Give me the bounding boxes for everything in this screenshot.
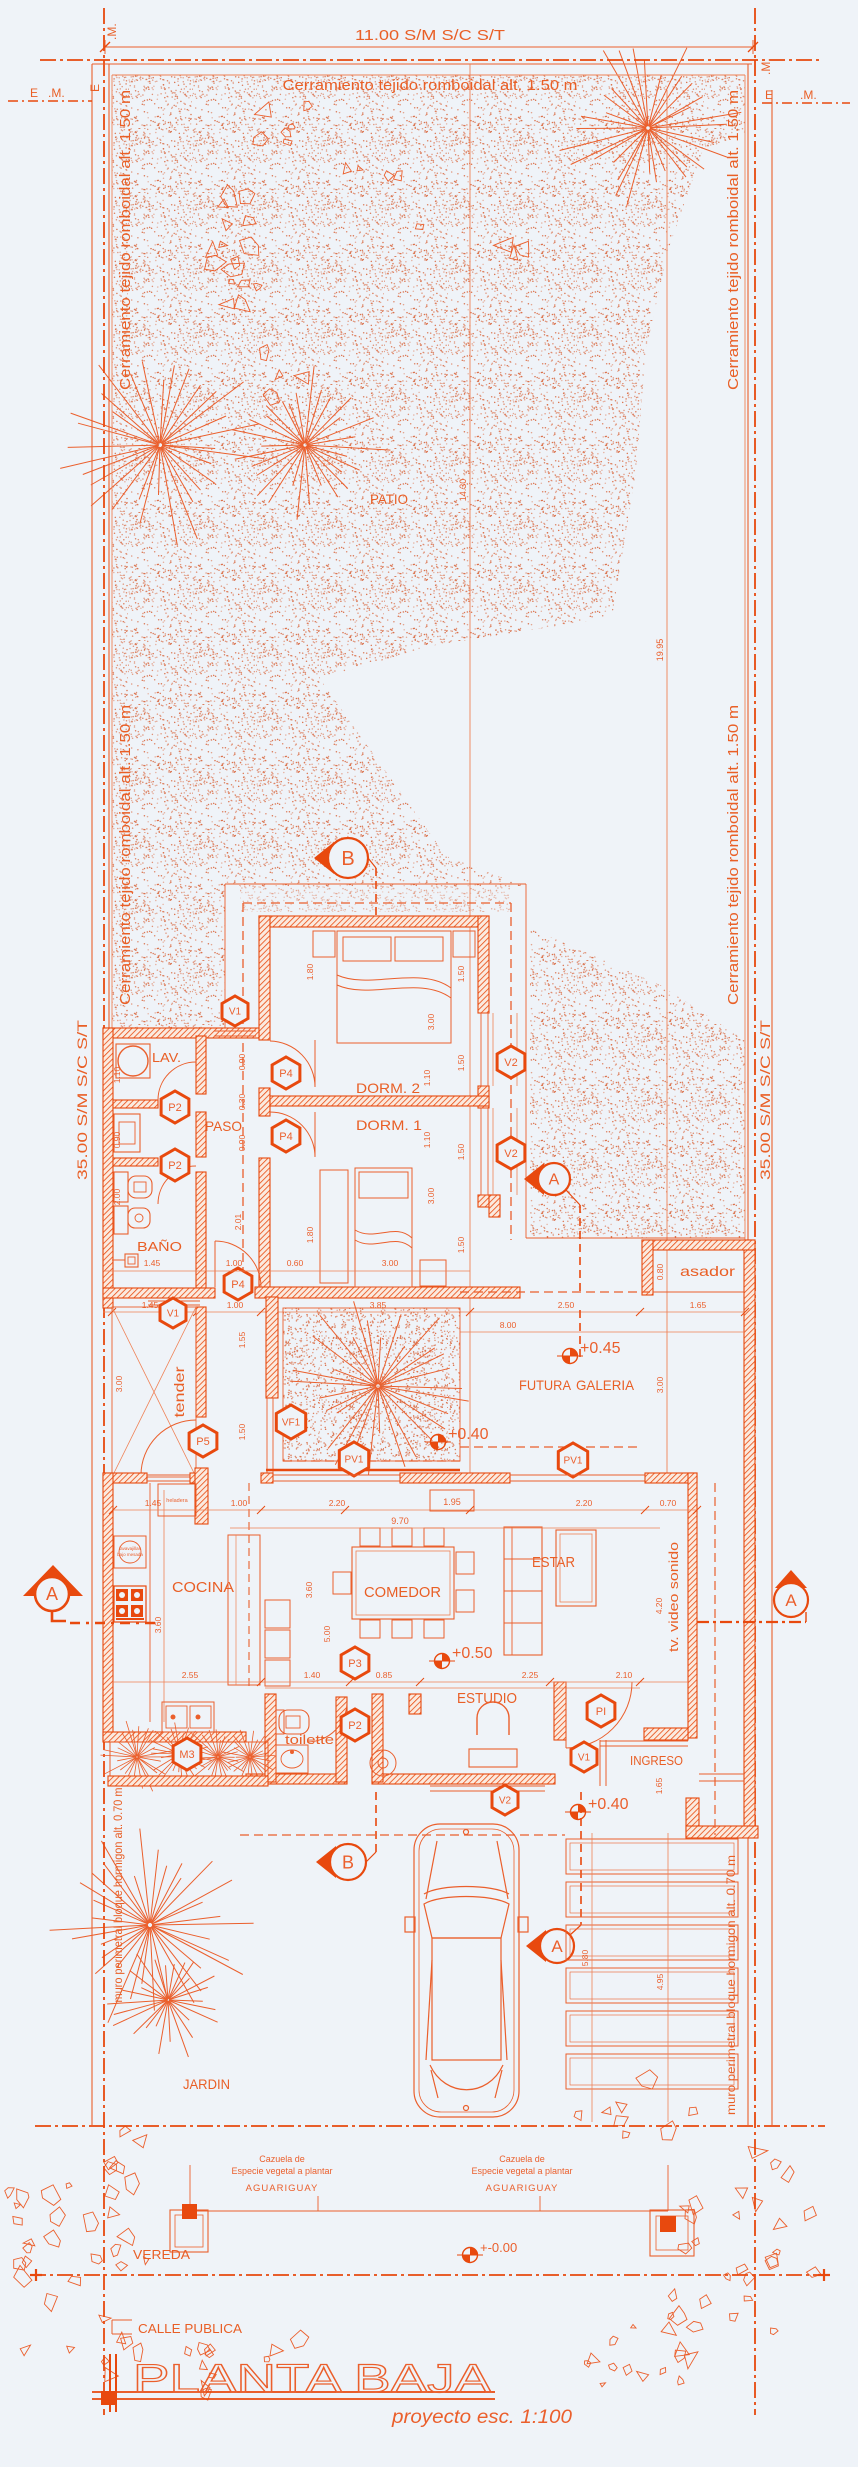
svg-text:lavavajillas: lavavajillas	[119, 1546, 142, 1551]
svg-text:1.00: 1.00	[226, 1258, 243, 1268]
svg-text:2.01: 2.01	[233, 1213, 243, 1230]
svg-text:3.60: 3.60	[304, 1581, 314, 1598]
svg-text:2.00: 2.00	[112, 1188, 122, 1205]
svg-text:E: E	[30, 86, 38, 100]
svg-text:ESTUDIO: ESTUDIO	[457, 1690, 517, 1707]
svg-text:3.00: 3.00	[426, 1013, 436, 1030]
svg-text:JARDIN: JARDIN	[183, 2076, 230, 2092]
svg-text:1.45: 1.45	[144, 1258, 161, 1268]
svg-text:E: E	[88, 84, 102, 92]
svg-text:+0.40: +0.40	[588, 1796, 629, 1813]
svg-text:Cerramiento tejido romboidal a: Cerramiento tejido romboidal alt. 1.50 m	[725, 90, 742, 390]
svg-text:3.60: 3.60	[153, 1616, 163, 1633]
svg-text:asador: asador	[680, 1263, 735, 1279]
svg-text:3.00: 3.00	[426, 1187, 436, 1204]
svg-text:VEREDA: VEREDA	[133, 2247, 190, 2262]
svg-text:BAÑO: BAÑO	[137, 1239, 182, 1254]
svg-text:P3: P3	[348, 1658, 361, 1670]
svg-text:1.65: 1.65	[654, 1777, 664, 1794]
svg-text:1.10: 1.10	[112, 1066, 122, 1083]
svg-text:AGUARIGUAY: AGUARIGUAY	[486, 2183, 559, 2194]
svg-text:0.85: 0.85	[376, 1670, 393, 1680]
svg-text:INGRESO: INGRESO	[630, 1753, 683, 1768]
svg-text:8.00: 8.00	[500, 1320, 517, 1330]
svg-text:Cerramiento tejido romboidal a: Cerramiento tejido romboidal alt. 1.50 m	[117, 705, 134, 1005]
svg-text:V2: V2	[499, 1796, 512, 1807]
svg-text:2.20: 2.20	[329, 1498, 346, 1508]
svg-text:2.20: 2.20	[576, 1498, 593, 1508]
svg-text:0.90: 0.90	[237, 1134, 247, 1151]
svg-text:.M.: .M.	[800, 88, 817, 102]
svg-text:1.10: 1.10	[422, 1131, 432, 1148]
svg-text:5.00: 5.00	[322, 1625, 332, 1642]
svg-text:11.00 S/M S/C S/T: 11.00 S/M S/C S/T	[355, 27, 505, 44]
svg-text:GALERIA: GALERIA	[576, 1377, 635, 1393]
svg-text:E: E	[765, 88, 773, 102]
svg-text:2.55: 2.55	[182, 1670, 199, 1680]
svg-text:Especie vegetal a plantar: Especie vegetal a plantar	[471, 2166, 572, 2176]
svg-text:A: A	[785, 1591, 797, 1610]
svg-text:A: A	[549, 1172, 560, 1189]
svg-text:V2: V2	[504, 1057, 517, 1069]
svg-text:tender: tender	[171, 1366, 187, 1417]
svg-text:1.50: 1.50	[456, 1143, 466, 1160]
svg-text:1.50: 1.50	[456, 1054, 466, 1071]
svg-text:1.40: 1.40	[304, 1670, 321, 1680]
svg-text:Cerramiento tejido romboidal a: Cerramiento tejido romboidal alt. 1.50 m	[117, 90, 134, 390]
svg-text:P2: P2	[348, 1720, 361, 1732]
svg-text:0.70: 0.70	[660, 1498, 677, 1508]
svg-text:A: A	[551, 1937, 563, 1956]
svg-text:2.50: 2.50	[558, 1300, 575, 1310]
svg-text:4.20: 4.20	[654, 1597, 664, 1614]
svg-text:0.90: 0.90	[237, 1053, 247, 1070]
svg-text:14.30: 14.30	[458, 479, 468, 502]
svg-text:1.00: 1.00	[227, 1300, 244, 1310]
svg-text:P5: P5	[196, 1436, 209, 1448]
svg-text:3.00: 3.00	[382, 1258, 399, 1268]
svg-text:9.70: 9.70	[391, 1516, 409, 1526]
svg-text:PV1: PV1	[345, 1455, 364, 1466]
svg-text:0.80: 0.80	[655, 1263, 665, 1280]
svg-text:+0.40: +0.40	[448, 1426, 489, 1443]
svg-text:COMEDOR: COMEDOR	[364, 1584, 441, 1601]
svg-text:P4: P4	[231, 1279, 244, 1291]
svg-text:AGUARIGUAY: AGUARIGUAY	[246, 2183, 319, 2194]
svg-text:+0.45: +0.45	[580, 1340, 621, 1357]
svg-text:A: A	[46, 1584, 58, 1604]
svg-text:1.80: 1.80	[305, 963, 315, 980]
svg-text:Cazuela de: Cazuela de	[499, 2154, 545, 2164]
svg-text:P2: P2	[168, 1102, 181, 1114]
svg-text:COCINA: COCINA	[172, 1579, 234, 1596]
svg-text:.M.: .M.	[48, 86, 65, 100]
svg-text:FUTURA: FUTURA	[519, 1377, 572, 1393]
svg-text:P2: P2	[168, 1160, 181, 1172]
svg-text:3.00: 3.00	[655, 1376, 665, 1393]
svg-text:1.45: 1.45	[142, 1300, 159, 1310]
svg-text:heladera: heladera	[166, 1498, 188, 1504]
svg-text:Cazuela de: Cazuela de	[259, 2154, 305, 2164]
svg-text:4.95: 4.95	[655, 1973, 665, 1990]
svg-text:1.10: 1.10	[422, 1069, 432, 1086]
svg-text:muro perimetral bloque hormigo: muro perimetral bloque hormigon alt. 0.7…	[724, 1855, 738, 2115]
svg-text:P4: P4	[279, 1131, 292, 1143]
svg-text:.M.: .M.	[759, 58, 773, 75]
svg-text:PV1: PV1	[564, 1456, 583, 1467]
svg-text:P4: P4	[279, 1068, 292, 1080]
svg-text:1.00: 1.00	[231, 1498, 248, 1508]
svg-text:5.80: 5.80	[580, 1949, 590, 1966]
svg-text:+0.50: +0.50	[452, 1645, 493, 1662]
svg-text:B: B	[342, 1852, 354, 1872]
svg-text:PATIO: PATIO	[370, 491, 408, 507]
svg-text:PI: PI	[596, 1706, 606, 1718]
svg-text:1.45: 1.45	[145, 1498, 162, 1508]
svg-text:Especie vegetal a plantar: Especie vegetal a plantar	[231, 2166, 332, 2176]
svg-text:muro perimetral bloque hormigo: muro perimetral bloque hormigon alt. 0.7…	[111, 1788, 125, 2003]
svg-text:DORM. 1: DORM. 1	[356, 1117, 422, 1133]
svg-text:B: B	[341, 848, 354, 870]
svg-text:35.00 S/M S/C S/T: 35.00 S/M S/C S/T	[74, 1019, 90, 1180]
svg-text:19.95: 19.95	[655, 639, 665, 662]
svg-text:PASO: PASO	[205, 1118, 242, 1134]
svg-text:V1: V1	[578, 1753, 591, 1764]
svg-text:V1: V1	[229, 1007, 242, 1018]
svg-text:1.50: 1.50	[237, 1423, 247, 1440]
svg-text:+-0.00: +-0.00	[480, 2240, 517, 2255]
svg-text:Cerramiento tejido romboidal a: Cerramiento tejido romboidal alt. 1.50 m	[283, 77, 578, 94]
svg-text:1.65: 1.65	[690, 1300, 707, 1310]
svg-text:3.00: 3.00	[114, 1375, 124, 1392]
svg-text:2.25: 2.25	[522, 1670, 539, 1680]
svg-text:ESTAR: ESTAR	[532, 1554, 575, 1571]
svg-text:LAV.: LAV.	[152, 1050, 181, 1065]
svg-text:.M.: .M.	[105, 23, 119, 40]
svg-text:V2: V2	[504, 1148, 517, 1160]
svg-text:VF1: VF1	[282, 1418, 301, 1429]
svg-text:PLANTA BAJA: PLANTA BAJA	[133, 2357, 491, 2401]
svg-text:1.80: 1.80	[305, 1226, 315, 1243]
svg-text:1.50: 1.50	[456, 1236, 466, 1253]
svg-text:0.30: 0.30	[237, 1093, 247, 1110]
svg-text:Cerramiento tejido romboidal a: Cerramiento tejido romboidal alt. 1.50 m	[725, 705, 742, 1005]
svg-text:35.00 S/M S/C S/T: 35.00 S/M S/C S/T	[757, 1019, 773, 1180]
svg-text:0.60: 0.60	[287, 1258, 304, 1268]
svg-text:M3: M3	[179, 1749, 194, 1761]
svg-text:1.55: 1.55	[237, 1331, 247, 1348]
svg-text:V1: V1	[167, 1309, 180, 1320]
svg-text:1.95: 1.95	[443, 1497, 461, 1507]
svg-text:0.90: 0.90	[112, 1131, 122, 1148]
svg-text:2.10: 2.10	[616, 1670, 633, 1680]
svg-text:proyecto esc. 1:100: proyecto esc. 1:100	[391, 2407, 573, 2428]
svg-text:bajo mesada: bajo mesada	[117, 1552, 143, 1557]
svg-text:DORM. 2: DORM. 2	[356, 1080, 420, 1096]
svg-text:1.50: 1.50	[456, 965, 466, 982]
svg-text:tv. video sonido: tv. video sonido	[666, 1542, 681, 1652]
svg-text:CALLE PUBLICA: CALLE PUBLICA	[138, 2321, 242, 2336]
